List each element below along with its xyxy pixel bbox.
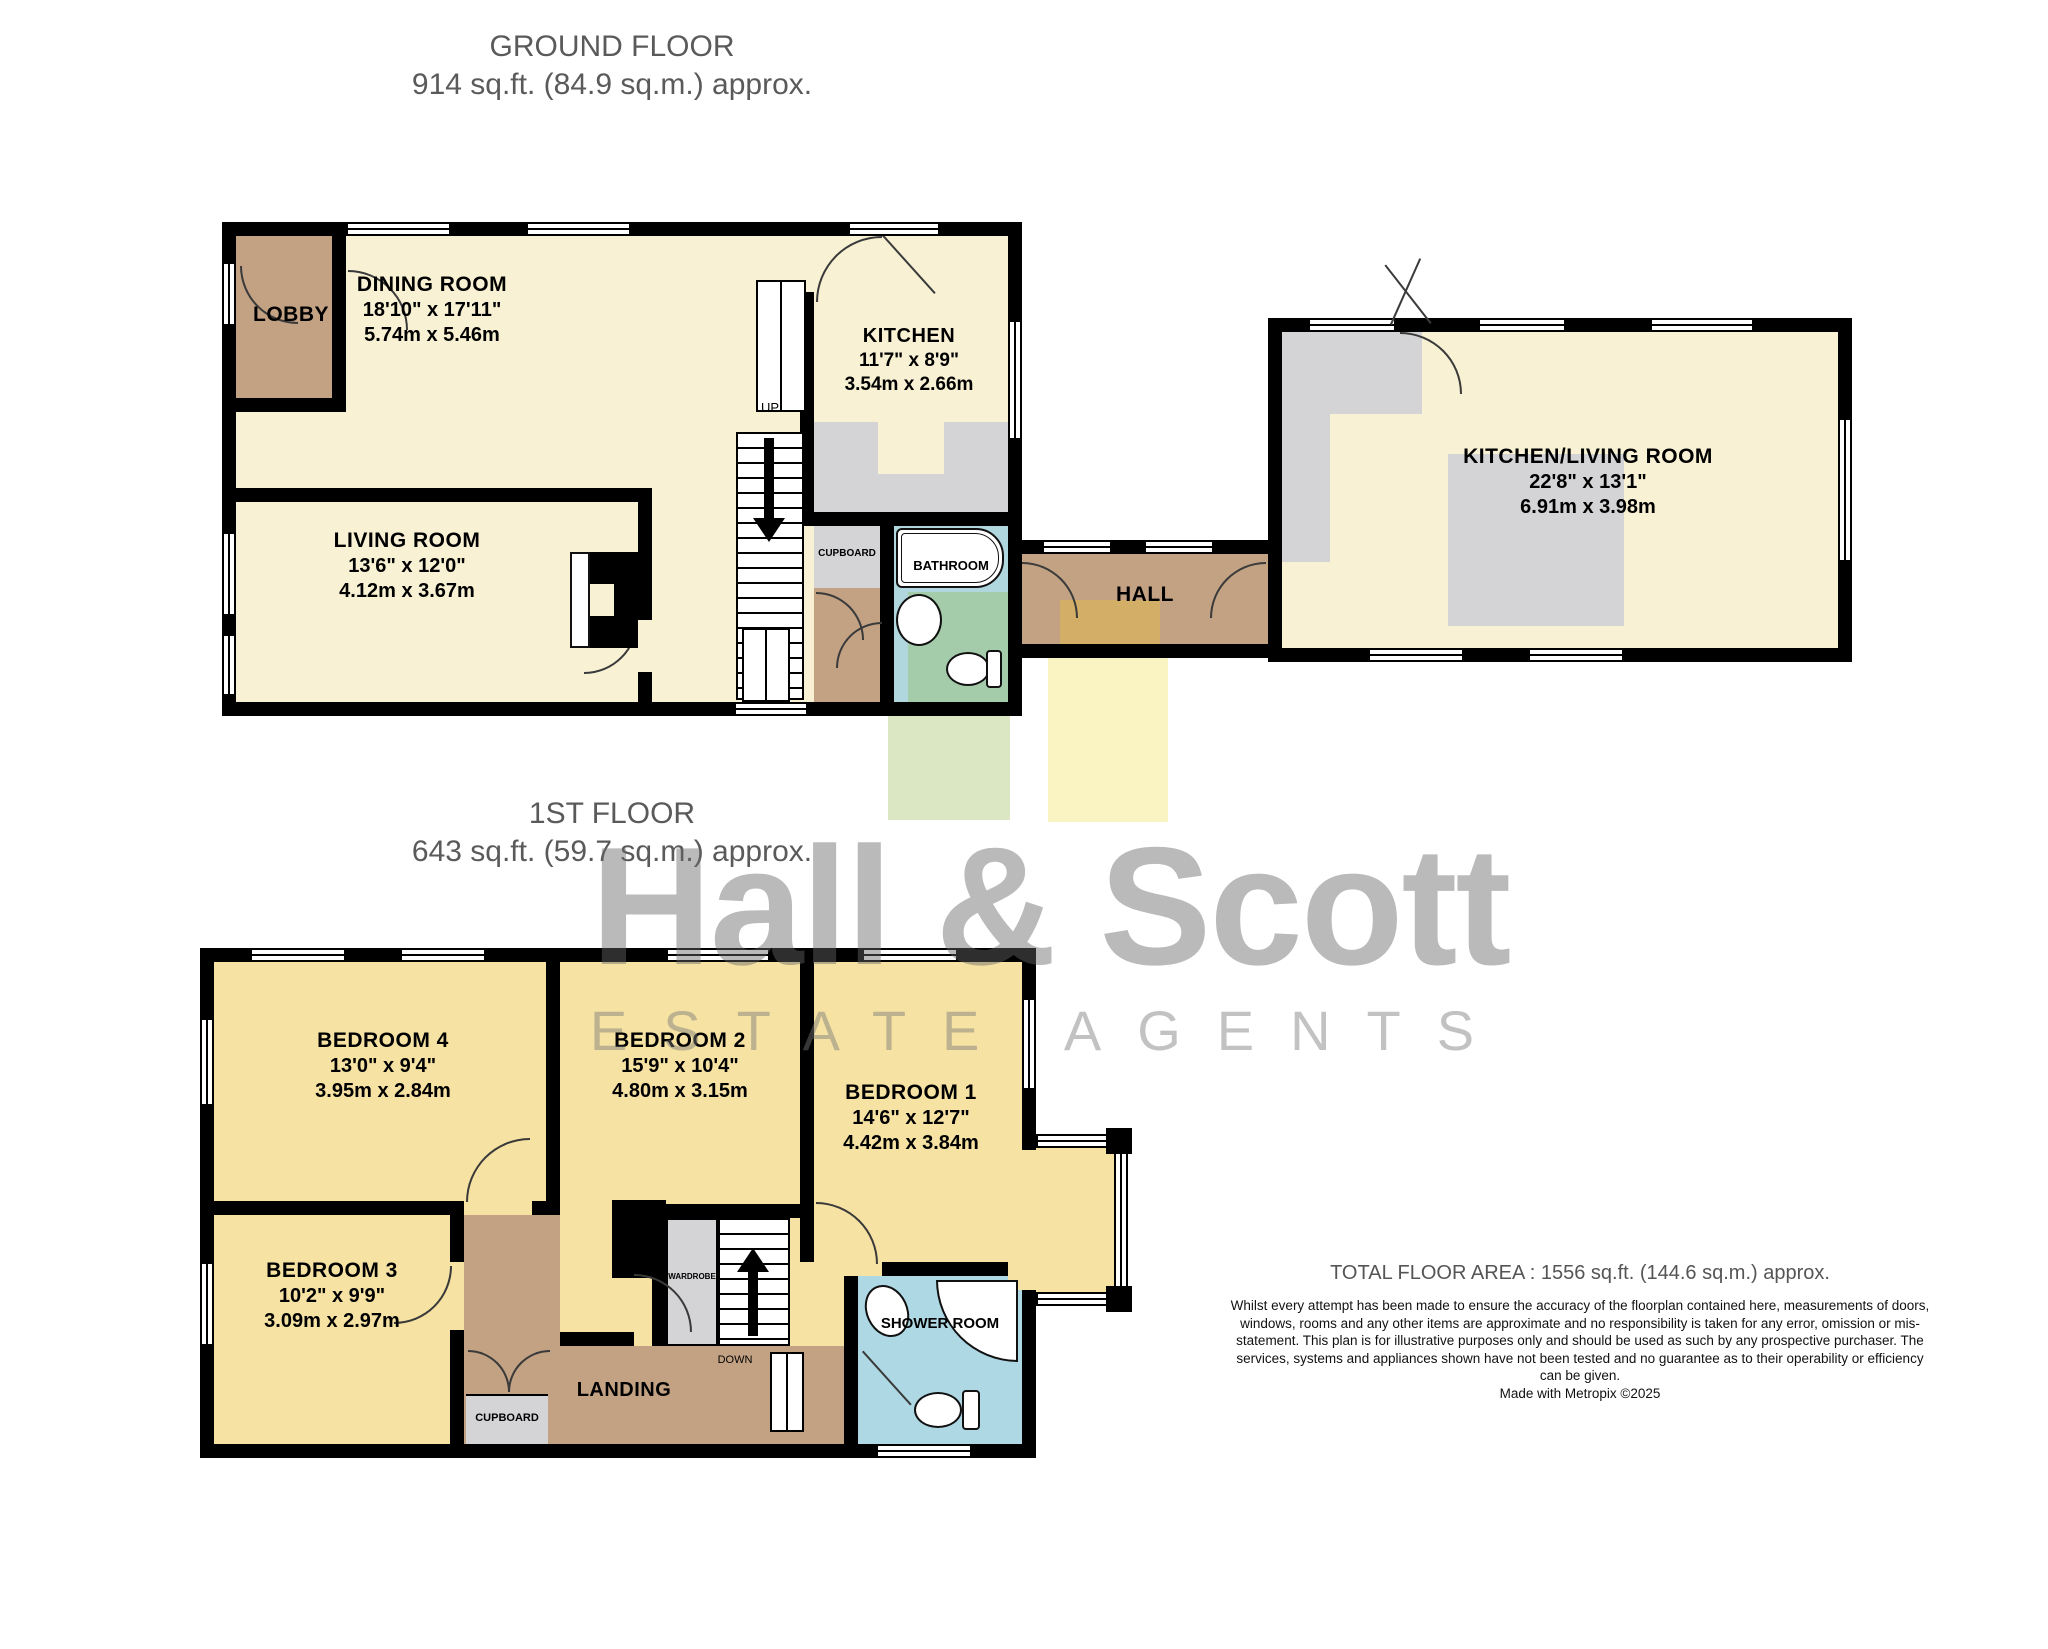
ff-window-left-2	[200, 1262, 214, 1346]
kitchen-living-plan: KITCHEN/LIVING ROOM 22'8" x 13'1" 6.91m …	[1268, 318, 1852, 662]
bedroom4-bedroom2-wall	[546, 962, 560, 1201]
first-floor-plan: BEDROOM 4 13'0" x 9'4" 3.95m x 2.84m BED…	[200, 948, 1036, 1458]
ff-window-top-2	[400, 948, 486, 962]
stairs-up-label: UP	[730, 400, 810, 415]
hall-window-2	[1144, 540, 1214, 554]
bedroom4-bottom-wall-right	[532, 1201, 560, 1215]
klr-window-bottom-1	[1368, 648, 1464, 662]
bedroom2-imperial: 15'9" x 10'4"	[560, 1054, 800, 1079]
bedroom1-door-arc	[816, 1202, 878, 1264]
ground-floor-area-text: 914 sq.ft. (84.9 sq.m.) approx.	[312, 66, 912, 104]
living-right-wall-upper	[638, 488, 652, 620]
klr-ext-door-leaf-2	[1384, 264, 1431, 324]
kitchen-bottom-wall	[800, 512, 1008, 526]
bedroom3-name: BEDROOM 3	[214, 1258, 450, 1284]
kitchen-living-label: KITCHEN/LIVING ROOM 22'8" x 13'1" 6.91m …	[1402, 444, 1774, 520]
bedroom1-imperial: 14'6" x 12'7"	[800, 1106, 1022, 1131]
bedroom1-metric: 4.42m x 3.84m	[800, 1131, 1022, 1156]
shower-toilet-bowl-icon	[914, 1392, 962, 1428]
cupboard-gf-label: CUPBOARD	[810, 548, 884, 559]
hall-name: HALL	[1116, 583, 1174, 606]
fireplace-hearth-icon	[570, 552, 590, 648]
wardrobe-label: WARDROBE	[662, 1272, 722, 1281]
floorplan-canvas: GROUND FLOOR 914 sq.ft. (84.9 sq.m.) app…	[0, 0, 2048, 1649]
living-right-wall-lower	[638, 672, 652, 702]
toilet-tank-icon	[986, 650, 1002, 688]
bedroom4-door-arc	[466, 1138, 530, 1202]
living-room-label: LIVING ROOM 13'6" x 12'0" 4.12m x 3.67m	[242, 528, 572, 604]
bedroom4-name: BEDROOM 4	[220, 1028, 546, 1054]
bedroom4-metric: 3.95m x 2.84m	[220, 1079, 546, 1104]
klr-window-top-2	[1478, 318, 1566, 332]
dining-room-metric: 5.74m x 5.46m	[262, 323, 602, 348]
ff-stairs-arrow-shaft	[748, 1270, 758, 1336]
ff-window-top-4	[862, 948, 958, 962]
bedroom1-bottom-wall	[882, 1262, 1022, 1276]
disclaimer-text: Whilst every attempt has been made to en…	[1230, 1297, 1930, 1385]
kitchen-door-leaf	[882, 235, 936, 294]
kitchen-door-arc	[816, 236, 882, 302]
total-floor-area: TOTAL FLOOR AREA : 1556 sq.ft. (144.6 sq…	[1230, 1262, 1930, 1285]
bay-opening	[1008, 1150, 1038, 1290]
ff-window-right-1	[1022, 998, 1036, 1090]
ff-stairs-arrow-up-icon	[737, 1248, 769, 1272]
kitchen-counter-right	[944, 422, 1008, 512]
bedroom1-name: BEDROOM 1	[800, 1080, 1022, 1106]
gf-bottom-window	[734, 702, 808, 716]
toilet-bowl-icon	[946, 652, 990, 686]
bedroom3-wall-lower	[450, 1330, 464, 1444]
garden-patch-yellow	[1048, 644, 1168, 822]
klr-window-bottom-2	[1528, 648, 1624, 662]
cupboard-ff-label: CUPBOARD	[462, 1412, 552, 1424]
bathroom-sink-icon	[896, 594, 942, 646]
dining-window-1	[346, 222, 451, 236]
bedroom2-name: BEDROOM 2	[560, 1028, 800, 1054]
living-room-imperial: 13'6" x 12'0"	[242, 554, 572, 579]
metropix-credit: Made with Metropix ©2025	[1230, 1385, 1930, 1403]
bedroom4-label: BEDROOM 4 13'0" x 9'4" 3.95m x 2.84m	[220, 1028, 546, 1104]
bedroom2-bottom-wall	[560, 1332, 634, 1346]
bedroom4-bottom-wall-left	[214, 1201, 464, 1215]
ground-floor-title-text: GROUND FLOOR	[312, 28, 912, 66]
living-room-name: LIVING ROOM	[242, 528, 572, 554]
bedroom3-label: BEDROOM 3 10'2" x 9'9" 3.09m x 2.97m	[214, 1258, 450, 1334]
first-floor-title-text: 1ST FLOOR	[312, 795, 912, 833]
living-window-1	[222, 532, 236, 616]
bedroom3-metric: 3.09m x 2.97m	[214, 1309, 450, 1334]
lobby-window	[222, 262, 236, 326]
room-hall: HALL	[1022, 540, 1268, 658]
ground-floor-plan: LOBBY DINING ROOM 18'10" x 17'11" 5.74m …	[222, 222, 1022, 716]
dining-room-name: DINING ROOM	[262, 272, 602, 298]
kitchen-window-right	[1008, 320, 1022, 440]
kitchen-living-metric: 6.91m x 3.98m	[1402, 495, 1774, 520]
first-floor-title: 1ST FLOOR 643 sq.ft. (59.7 sq.m.) approx…	[312, 795, 912, 870]
kitchen-label: KITCHEN 11'7" x 8'9" 3.54m x 2.66m	[810, 324, 1008, 397]
klr-window-right	[1838, 418, 1852, 562]
first-floor-area-text: 643 sq.ft. (59.7 sq.m.) approx.	[312, 833, 912, 871]
stair-closet-panel	[756, 280, 806, 412]
bay-post-se	[1106, 1286, 1132, 1312]
stair-lower-panel	[742, 628, 790, 702]
kitchen-name: KITCHEN	[810, 324, 1008, 349]
hall-window-1	[1042, 540, 1112, 554]
klr-window-top-3	[1650, 318, 1754, 332]
dining-window-2	[526, 222, 631, 236]
stairs-arrow-down-icon	[753, 518, 785, 542]
bedroom2-label: BEDROOM 2 15'9" x 10'4" 4.80m x 3.15m	[560, 1028, 800, 1104]
kitchen-living-name: KITCHEN/LIVING ROOM	[1402, 444, 1774, 470]
footer: TOTAL FLOOR AREA : 1556 sq.ft. (144.6 sq…	[1230, 1262, 1930, 1402]
klr-counter-left	[1282, 414, 1330, 562]
ground-floor-title: GROUND FLOOR 914 sq.ft. (84.9 sq.m.) app…	[312, 28, 912, 103]
klr-window-top-1	[1308, 318, 1396, 332]
bedroom3-wall-upper	[450, 1215, 464, 1262]
dining-room-imperial: 18'10" x 17'11"	[262, 298, 602, 323]
ff-window-top-1	[250, 948, 346, 962]
landing-name: LANDING	[577, 1379, 672, 1401]
kitchen-living-imperial: 22'8" x 13'1"	[1402, 470, 1774, 495]
shower-toilet-tank-icon	[962, 1390, 980, 1430]
kitchen-imperial: 11'7" x 8'9"	[810, 349, 1008, 373]
kitchen-window-top	[848, 222, 940, 236]
ff-window-top-3	[666, 948, 770, 962]
bay-post-ne	[1106, 1128, 1132, 1154]
bathroom-label: BATHROOM	[888, 558, 1014, 573]
down-label: DOWN	[700, 1354, 770, 1366]
bedroom2-metric: 4.80m x 3.15m	[560, 1079, 800, 1104]
dining-room-label: DINING ROOM 18'10" x 17'11" 5.74m x 5.46…	[262, 272, 602, 348]
hall-label: HALL	[1022, 582, 1268, 608]
stair-door-panel-ff	[770, 1352, 804, 1432]
landing-label: LANDING	[514, 1378, 734, 1403]
stairs-arrow-shaft	[764, 438, 774, 518]
living-window-2	[222, 634, 236, 696]
bedroom3-imperial: 10'2" x 9'9"	[214, 1284, 450, 1309]
fireplace-opening-icon	[590, 584, 614, 616]
kitchen-metric: 3.54m x 2.66m	[810, 373, 1008, 397]
klr-door-arc	[1400, 332, 1462, 394]
shower-left-wall	[844, 1276, 858, 1444]
living-room-metric: 4.12m x 3.67m	[242, 579, 572, 604]
ff-window-bottom-1	[876, 1444, 972, 1458]
dining-living-wall	[236, 488, 652, 502]
ff-window-left-1	[200, 1018, 214, 1106]
bay-window-right	[1114, 1134, 1128, 1306]
bedroom1-label: BEDROOM 1 14'6" x 12'7" 4.42m x 3.84m	[800, 1080, 1022, 1156]
bedroom4-imperial: 13'0" x 9'4"	[220, 1054, 546, 1079]
stairwell-top-wall	[666, 1204, 800, 1218]
shower-room-label: SHOWER ROOM	[858, 1314, 1022, 1334]
